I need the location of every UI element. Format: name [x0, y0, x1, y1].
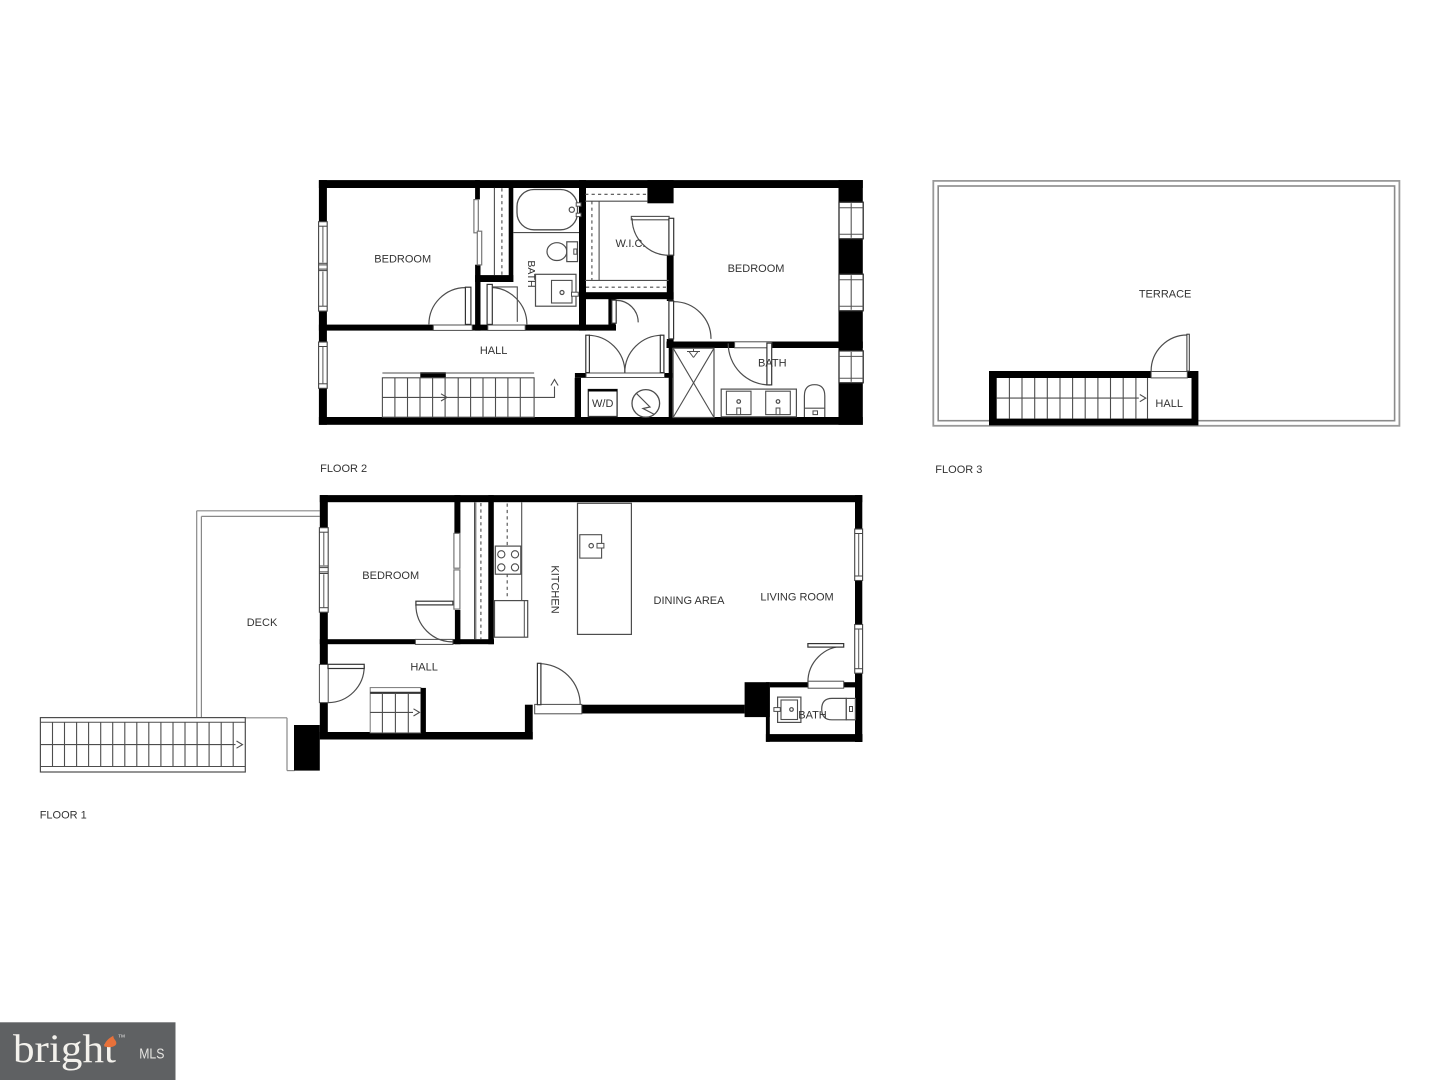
svg-text:DINING AREA: DINING AREA	[654, 595, 726, 607]
svg-text:HALL: HALL	[480, 345, 508, 357]
svg-text:BEDROOM: BEDROOM	[374, 254, 431, 266]
svg-text:bright: bright	[13, 1026, 116, 1071]
svg-text:KITCHEN: KITCHEN	[549, 565, 561, 613]
svg-text:TERRACE: TERRACE	[1139, 288, 1192, 300]
svg-text:FLOOR 2: FLOOR 2	[320, 463, 367, 475]
svg-text:LIVING ROOM: LIVING ROOM	[760, 592, 833, 604]
svg-text:FLOOR 3: FLOOR 3	[935, 464, 982, 476]
svg-text:BATH: BATH	[525, 260, 537, 287]
svg-text:DECK: DECK	[247, 617, 278, 629]
svg-text:MLS: MLS	[139, 1047, 164, 1063]
svg-text:FLOOR 1: FLOOR 1	[40, 810, 87, 822]
svg-text:W.I.C.: W.I.C.	[616, 238, 646, 250]
svg-text:BATH: BATH	[758, 358, 787, 370]
svg-text:™: ™	[118, 1033, 126, 1042]
svg-text:HALL: HALL	[1155, 398, 1183, 410]
svg-text:BEDROOM: BEDROOM	[728, 263, 785, 275]
svg-text:HALL: HALL	[410, 661, 438, 673]
svg-text:W/D: W/D	[592, 398, 613, 410]
svg-text:BATH: BATH	[798, 709, 827, 721]
svg-text:BEDROOM: BEDROOM	[362, 570, 419, 582]
